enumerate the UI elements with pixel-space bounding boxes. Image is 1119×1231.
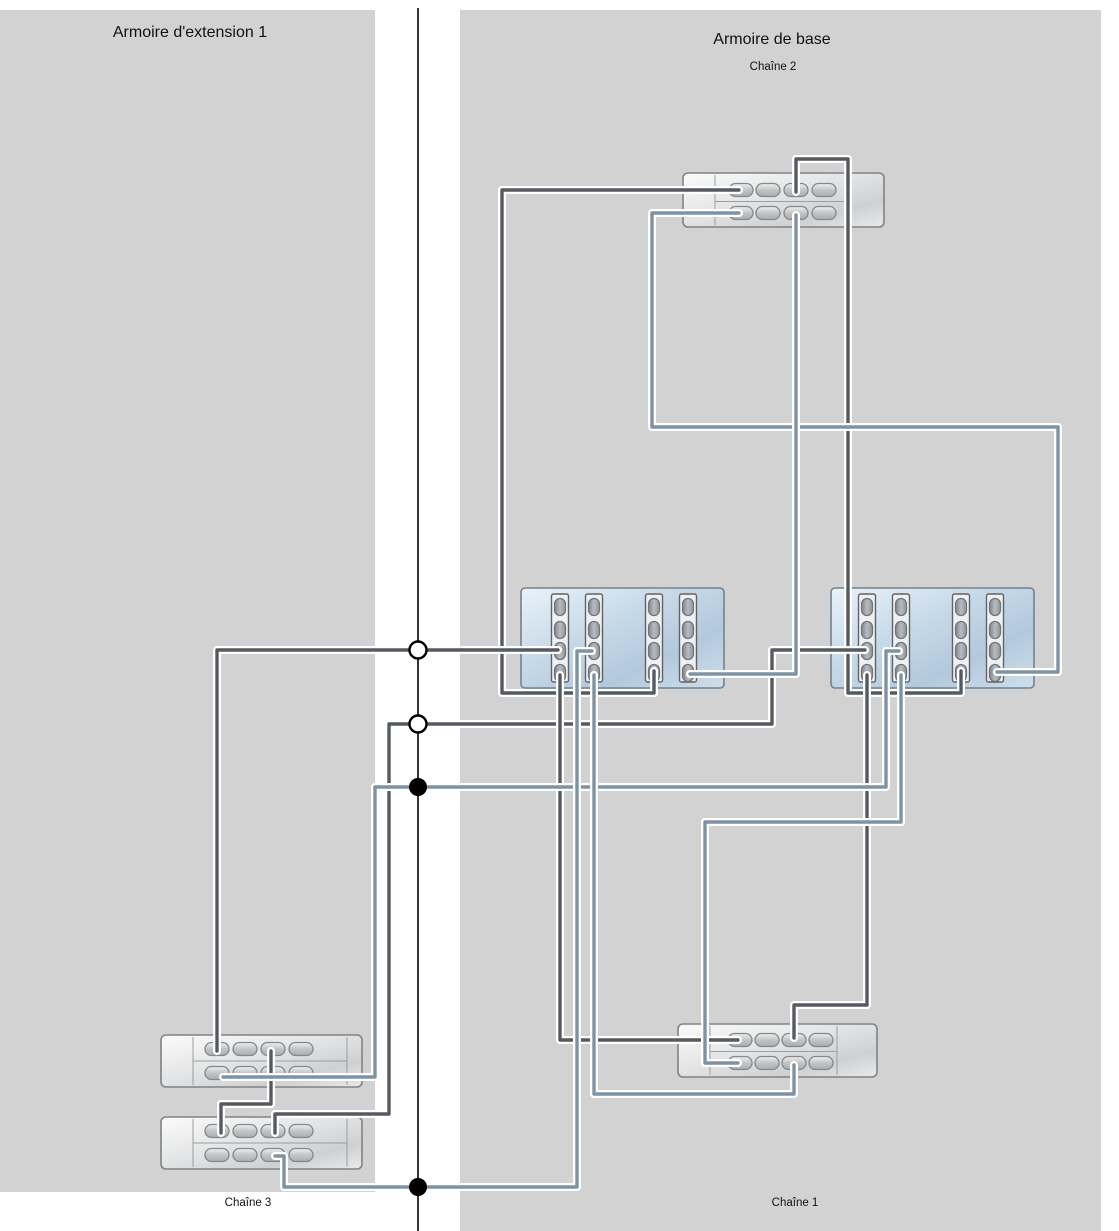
chain2-label: Chaîne 2 (750, 61, 797, 73)
controller-right-slot2-port2 (896, 622, 907, 639)
chain3-label: Chaîne 3 (225, 1197, 272, 1209)
controller-left-slot3-port2 (649, 622, 660, 639)
shelf-ext2-port-r2p4 (289, 1149, 313, 1162)
shelf-chain2-port-r2p4 (812, 207, 836, 220)
left-cabinet-panel (0, 10, 375, 1192)
controller-left-slot2-port1 (589, 599, 600, 616)
shelf-chain1-port-r2p4 (809, 1057, 833, 1070)
controller-right-slot2-port1 (896, 599, 907, 616)
shelf-chain2 (683, 173, 884, 227)
controller-left-slot3-port1 (649, 599, 660, 616)
shelf-ext2 (161, 1117, 362, 1169)
junction-filled-4 (409, 1178, 427, 1196)
shelf-chain1-port-r2p2 (755, 1057, 779, 1070)
left-cabinet-title: Armoire d'extension 1 (113, 24, 267, 42)
shelf-ext2-port-r1p2 (233, 1125, 257, 1138)
shelf-ext2-port-r1p4 (289, 1125, 313, 1138)
shelf-chain2-port-r2p2 (756, 207, 780, 220)
controller-right-slot1-port1 (862, 599, 873, 616)
controller-left-slot4-port1 (683, 599, 694, 616)
shelf-ext1-port-r1p4 (289, 1043, 313, 1056)
shelf-ext2-port-r2p1 (205, 1149, 229, 1162)
shelf-ext1-port-r1p2 (233, 1043, 257, 1056)
junction-filled-3 (409, 778, 427, 796)
controller-right-slot4-port2 (990, 622, 1001, 639)
shelf-chain2-port-r1p4 (812, 184, 836, 197)
controller-right-slot3-port1 (956, 599, 967, 616)
shelf-chain2-port-r1p2 (756, 184, 780, 197)
controller-left-slot4-port3 (683, 643, 694, 660)
controller-right-slot4-port1 (990, 599, 1001, 616)
controller-right-slot3-port2 (956, 622, 967, 639)
controller-right-slot1-port2 (862, 622, 873, 639)
shelf-chain2-chassis (683, 173, 884, 227)
controller-left-slot1-port2 (555, 622, 566, 639)
shelf-chain1-port-r1p4 (809, 1034, 833, 1047)
shelf-chain1-port-r1p2 (755, 1034, 779, 1047)
cabling-diagram: Armoire d'extension 1 Armoire de base Ch… (0, 0, 1119, 1231)
diagram-canvas (0, 0, 1119, 1231)
controller-right-slot4-port3 (990, 643, 1001, 660)
junction-open-2 (410, 716, 427, 733)
junction-open-1 (410, 642, 427, 659)
right-cabinet-title: Armoire de base (713, 31, 830, 49)
controller-right-slot3-port3 (956, 643, 967, 660)
controller-left-slot1-port1 (555, 599, 566, 616)
controller-left-slot4-port2 (683, 622, 694, 639)
controller-left-slot3-port3 (649, 643, 660, 660)
shelf-ext2-port-r2p2 (233, 1149, 257, 1162)
controller-left-slot2-port2 (589, 622, 600, 639)
chain1-label: Chaîne 1 (772, 1197, 819, 1209)
